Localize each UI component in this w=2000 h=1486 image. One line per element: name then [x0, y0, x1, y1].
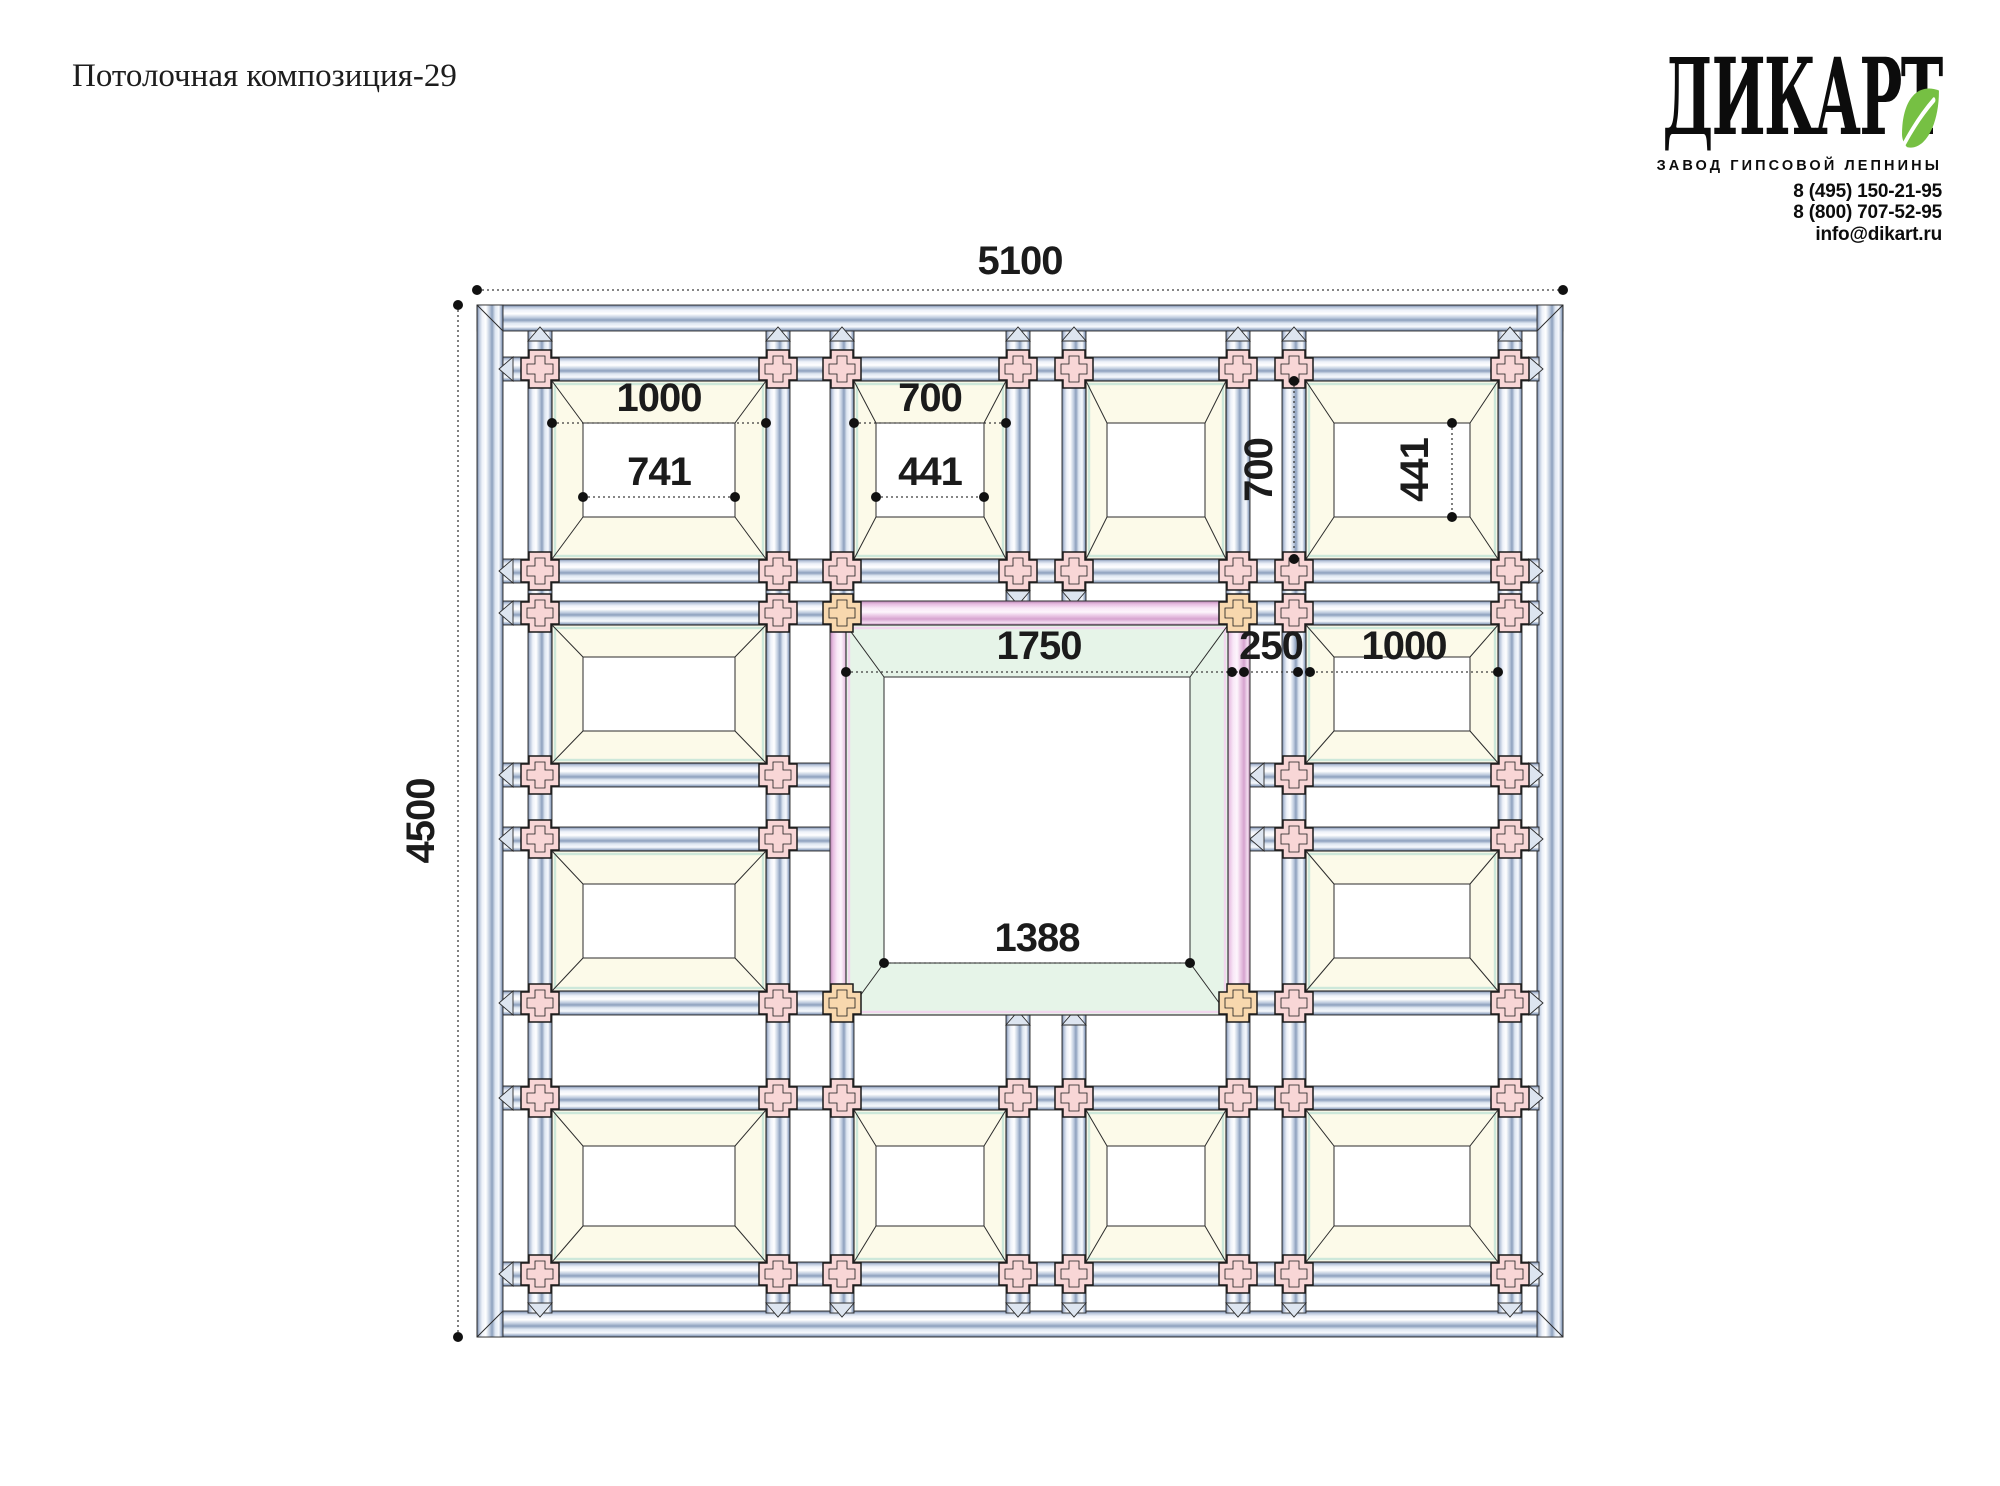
- dim-label-overall-width: 5100: [978, 239, 1063, 283]
- ceiling-plan-drawing: 5100 4500 1000 741 700 441 700 441 1750 …: [0, 0, 2000, 1486]
- dim-label-overall-height: 4500: [399, 779, 443, 864]
- dim-label-center-outer: 1750: [997, 624, 1082, 668]
- dim-label-right-small-outer: 700: [1237, 438, 1281, 502]
- dim-label-top-small-inner: 441: [898, 450, 962, 494]
- dim-label-top-large-inner: 741: [627, 450, 691, 494]
- dim-label-mid-right-outer: 1000: [1362, 624, 1447, 668]
- dim-label-top-large-outer: 1000: [617, 376, 702, 420]
- dim-label-top-small-outer: 700: [898, 376, 962, 420]
- dim-label-band: 250: [1239, 624, 1303, 668]
- dim-label-right-small-inner: 441: [1393, 437, 1437, 501]
- dim-label-center-inner: 1388: [995, 916, 1081, 960]
- page: Потолочная композиция-29 ДИКАРТ ЗАВОД ГИ…: [0, 0, 2000, 1486]
